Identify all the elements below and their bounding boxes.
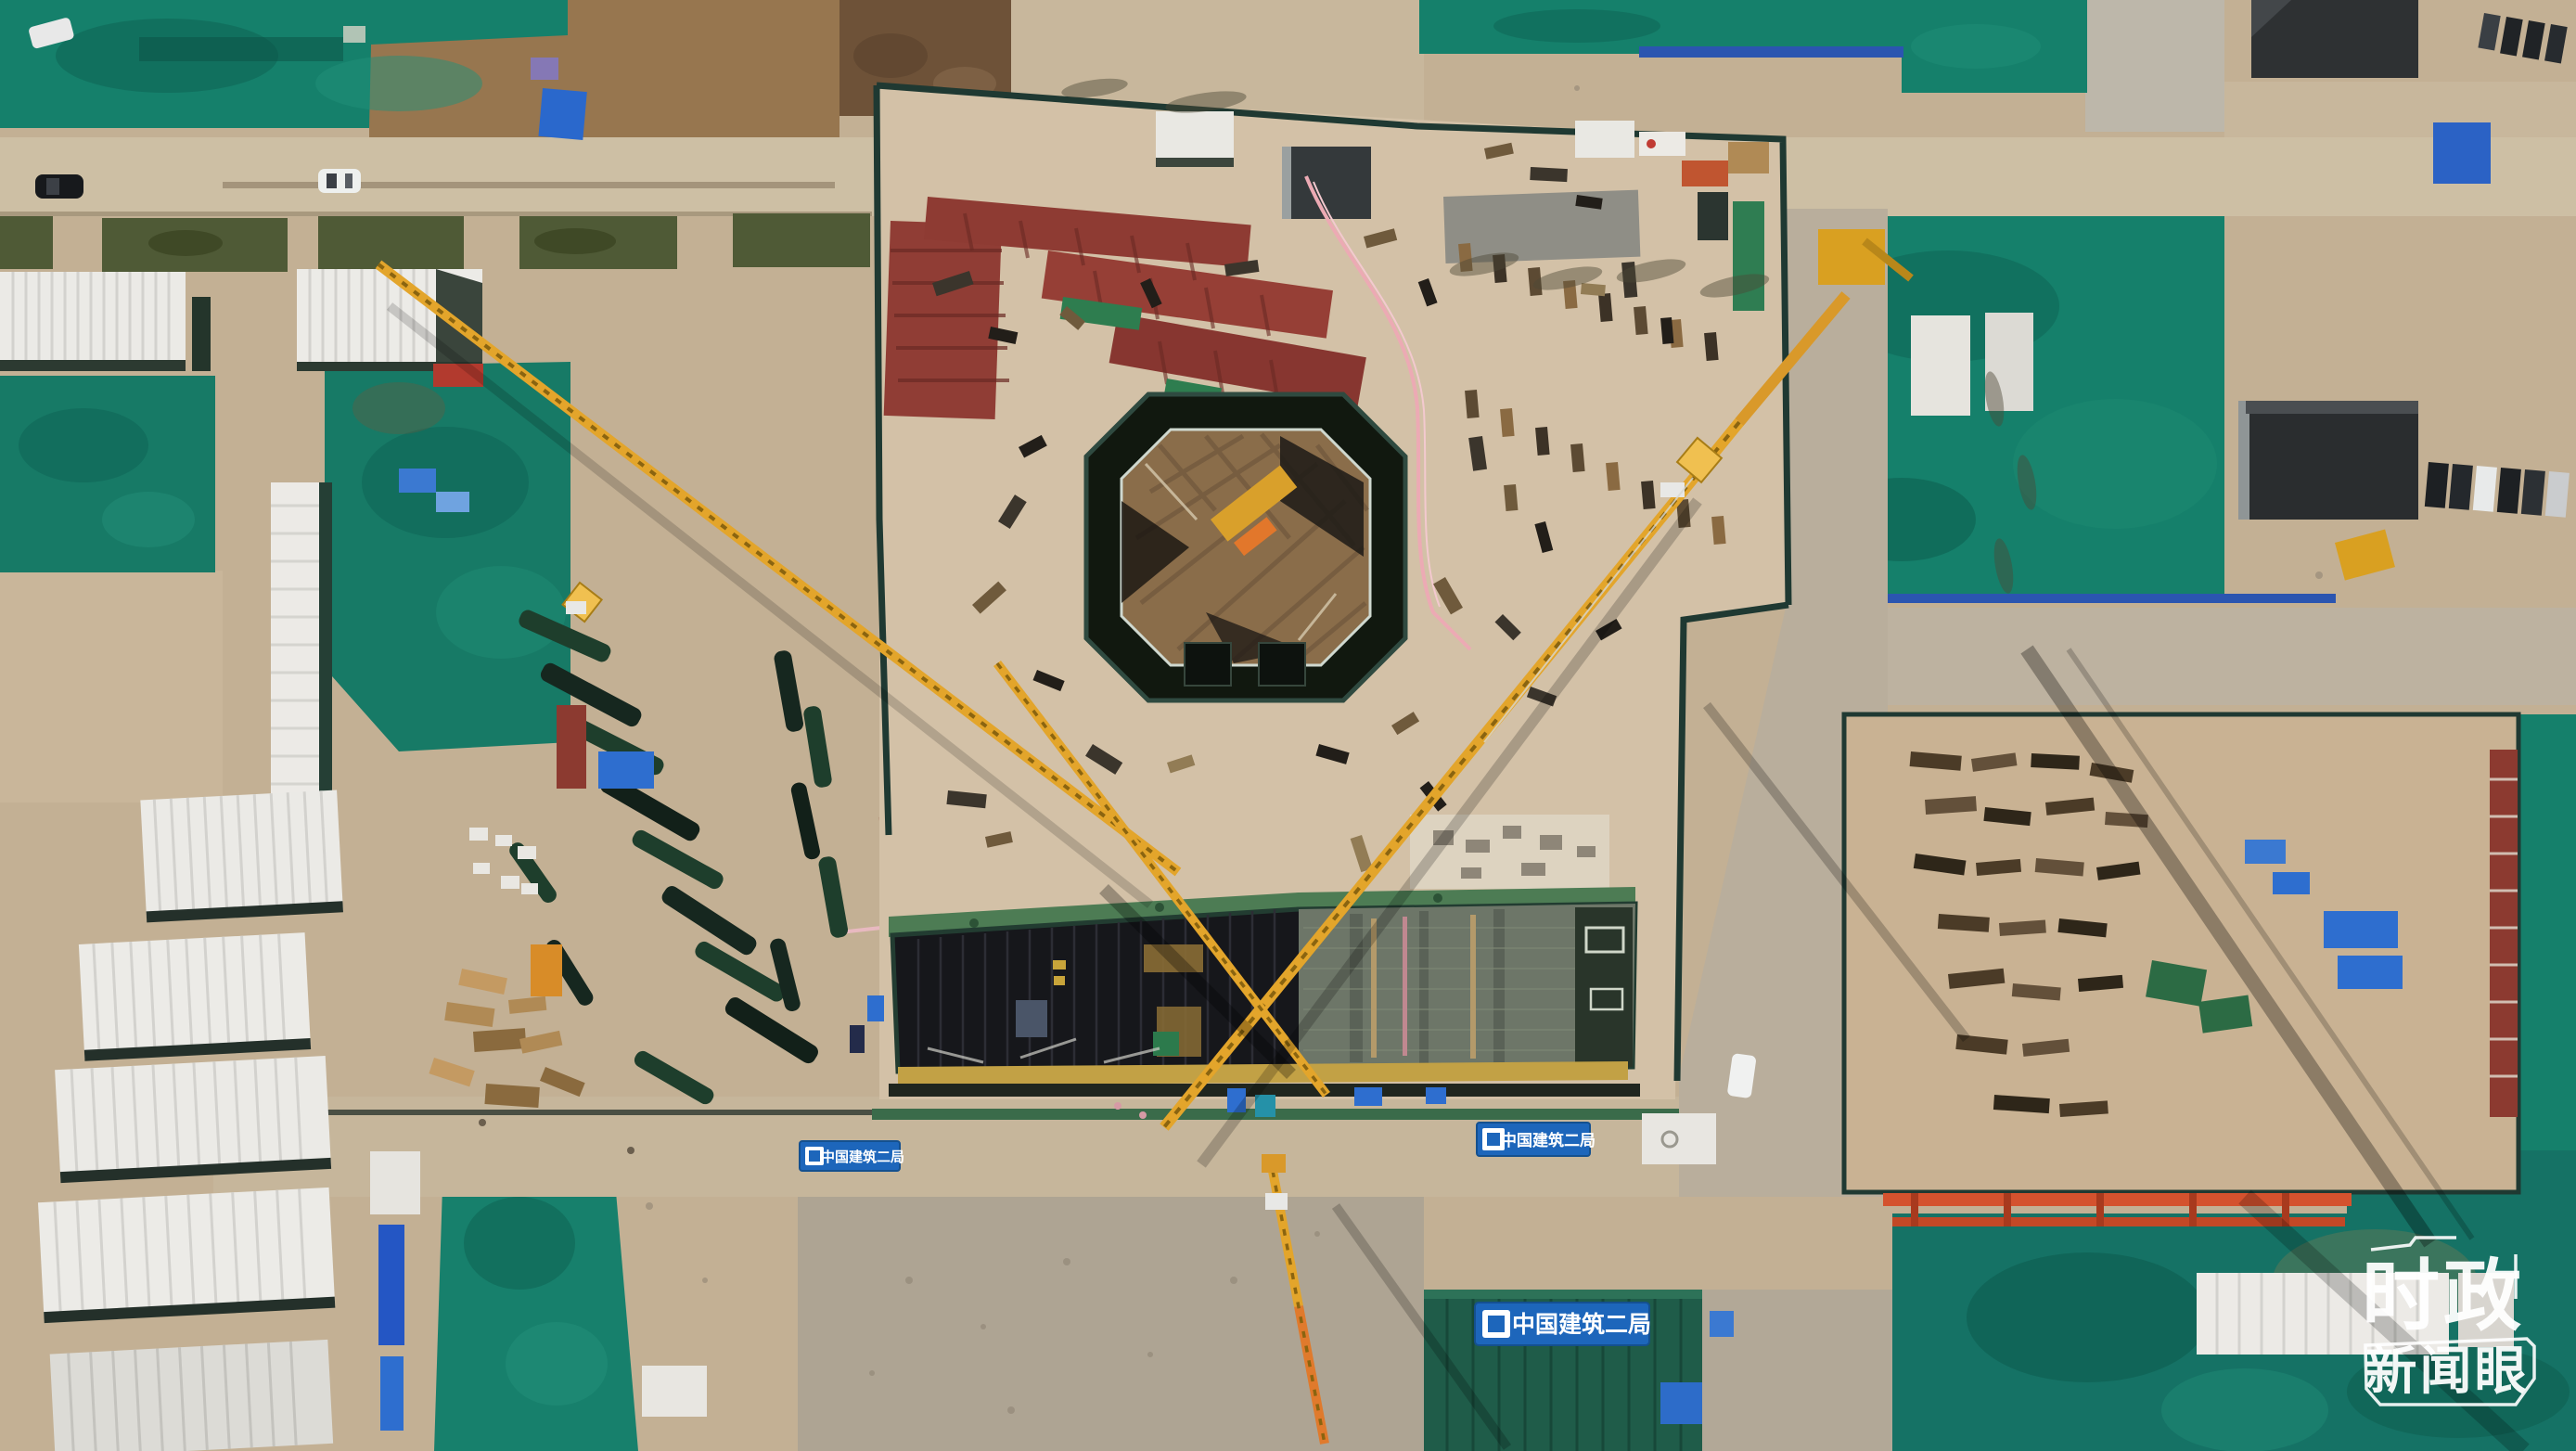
road-right-horizontal: [1888, 608, 2576, 705]
container-row-top-1: [0, 272, 186, 371]
watermark-line2: 新闻眼: [2365, 1342, 2530, 1400]
white-car: [318, 169, 361, 193]
aerial-construction-photo: 中国建筑二局 中国建筑二局 中国建筑二局 时政 新闻眼: [0, 0, 2576, 1451]
banner-text: 中国建筑二局: [821, 1149, 904, 1165]
red-scaffold-strip: [2490, 750, 2518, 1117]
watermark-line1: 时政: [2362, 1252, 2525, 1340]
dark-building-mid: [2238, 401, 2418, 520]
banner-text: 中国建筑二局: [1501, 1131, 1596, 1149]
white-container-roadside: [1642, 1113, 1716, 1164]
banner-text: 中国建筑二局: [1512, 1311, 1651, 1338]
dumpster: [192, 297, 211, 371]
net-band-top-center: [1419, 0, 1902, 54]
gate-shed: [1156, 111, 1234, 165]
crane-cab: [1660, 482, 1685, 497]
blue-stacks: [598, 751, 654, 789]
banner-road-center: 中国建筑二局: [1477, 1123, 1596, 1156]
blue-roof-building: [2433, 122, 2491, 184]
black-car: [35, 174, 83, 199]
banner-green-roof: 中国建筑二局: [1475, 1303, 1651, 1345]
scene-svg: 中国建筑二局 中国建筑二局 中国建筑二局 时政 新闻眼: [0, 0, 2576, 1451]
hedge-row: [0, 213, 870, 272]
net-strip-far-right: [2520, 714, 2576, 1215]
blue-container-column: [378, 1225, 404, 1345]
banner-road-left: 中国建筑二局: [800, 1141, 904, 1171]
blue-tarp: [538, 88, 586, 140]
octagon-pit: [1086, 394, 1405, 700]
watermark: 时政 新闻眼: [2362, 1238, 2534, 1405]
